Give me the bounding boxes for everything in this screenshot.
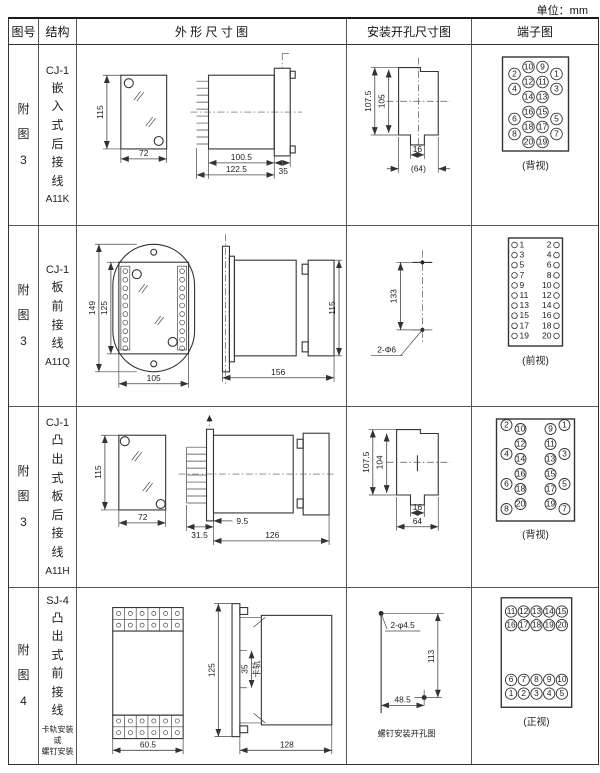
svg-text:1: 1	[562, 419, 567, 429]
svg-text:5: 5	[520, 260, 525, 270]
row4-terminal-cell: 1112131415161718192067891012345 (正视)	[472, 588, 598, 764]
row1-front-view: 115 72	[95, 75, 167, 163]
row3-fig-label: 附图3	[16, 459, 31, 535]
svg-text:5: 5	[562, 478, 567, 488]
row4-mounting-cell: 2-φ4.5 113 48.5 螺钉安装开孔图	[347, 588, 472, 764]
svg-text:5: 5	[560, 688, 565, 698]
row4-terminal-caption: (正视)	[523, 715, 549, 728]
row2-outline-cell: 149 125 105	[77, 226, 347, 407]
svg-text:7: 7	[521, 674, 526, 684]
svg-text:2: 2	[512, 68, 517, 78]
dim-v-outer: 107.5	[363, 90, 373, 111]
dim-plate-h: 149	[87, 301, 97, 315]
svg-text:14: 14	[516, 453, 526, 463]
header-terminal: 端子图	[472, 19, 598, 45]
svg-text:8: 8	[504, 503, 509, 513]
row2-model: CJ-1	[46, 264, 69, 276]
row1-model: CJ-1	[46, 65, 69, 77]
row2-outline-drawing: 149 125 105	[77, 226, 346, 406]
row4-note2: 或	[42, 736, 74, 747]
dim-rail: 35	[240, 664, 250, 674]
row4-outline-drawing: 60.5 125 35 卡轨	[77, 588, 346, 764]
dim-width: 72	[138, 512, 148, 522]
row3-terminal-cell: 2468101214161820911131517191357 (背视)	[472, 407, 598, 588]
row3-fig-cell: 附图3	[9, 407, 39, 588]
row2-terminal-drawing: 1357911131517192468101214161820 (前视)	[472, 226, 598, 406]
dim-spacing: 133	[389, 289, 399, 303]
header-mounting: 安装开孔尺寸图	[347, 19, 472, 45]
row3-code: A11H	[45, 566, 69, 577]
dim-body-h: 125	[99, 301, 109, 315]
svg-text:14: 14	[524, 91, 534, 101]
svg-text:5: 5	[554, 113, 559, 123]
row1-terminal-circles: 2468101214161820911131517191357	[509, 61, 563, 148]
svg-text:13: 13	[532, 606, 542, 616]
row2-fig-cell: 附图3	[9, 226, 39, 407]
svg-text:8: 8	[547, 270, 552, 280]
svg-text:7: 7	[554, 128, 559, 138]
svg-text:7: 7	[562, 503, 567, 513]
row4-note3: 螺钉安装	[42, 747, 74, 758]
svg-text:16: 16	[524, 106, 534, 116]
svg-text:11: 11	[546, 438, 555, 448]
hole-label: 2-φ4.5	[390, 620, 415, 630]
row1-terminal-drawing: 2468101214161820911131517191357 (背视)	[472, 45, 598, 225]
relay-dimension-sheet: 单位：mm 图号 结构 外 形 尺 寸 图 安装开孔尺寸图 端子图 附图3 CJ…	[0, 0, 600, 773]
svg-text:9: 9	[520, 280, 525, 290]
svg-text:3: 3	[534, 688, 539, 698]
svg-text:10: 10	[557, 674, 567, 684]
svg-text:6: 6	[509, 674, 514, 684]
svg-text:19: 19	[546, 498, 556, 508]
svg-text:19: 19	[545, 619, 555, 629]
dim-height: 115	[93, 465, 103, 479]
row3-outline-cell: 115 72	[77, 407, 347, 588]
svg-text:13: 13	[538, 91, 548, 101]
svg-text:12: 12	[542, 290, 552, 300]
svg-text:17: 17	[538, 121, 548, 131]
svg-text:18: 18	[532, 619, 542, 629]
svg-text:14: 14	[542, 300, 552, 310]
svg-text:15: 15	[538, 106, 548, 116]
row4-model: SJ-4	[46, 595, 69, 607]
svg-text:18: 18	[516, 483, 526, 493]
svg-text:13: 13	[546, 453, 556, 463]
row2-mounting-cell: 133 2-Φ6	[347, 226, 472, 407]
row1-outline-cell: 115 72	[77, 45, 347, 226]
row2-terminal-caption: (前视)	[522, 354, 549, 367]
row3-structure-text: 凸出式板后接线	[50, 431, 65, 561]
dim-height: 115	[95, 105, 105, 119]
row3-structure-cell: CJ-1 凸出式板后接线 A11H	[39, 407, 77, 588]
row2-mounting-drawing: 133 2-Φ6	[347, 226, 471, 406]
row4-structure-cell: SJ-4 凸出式前接线 卡轨安装 或 螺钉安装	[39, 588, 77, 764]
header-structure: 结构	[39, 19, 77, 45]
dim-height: 125	[206, 663, 216, 677]
svg-text:17: 17	[519, 619, 529, 629]
row3-terminal-drawing: 2468101214161820911131517191357 (背视)	[472, 407, 598, 587]
dim-side-h: 115	[327, 301, 337, 315]
row4-front-view: 60.5	[113, 608, 183, 755]
svg-text:7: 7	[520, 270, 525, 280]
svg-text:17: 17	[546, 483, 556, 493]
svg-text:10: 10	[542, 280, 552, 290]
row3-model: CJ-1	[46, 417, 69, 429]
row2-side-view: 156 115	[222, 234, 342, 383]
svg-text:9: 9	[548, 423, 553, 433]
svg-text:11: 11	[538, 76, 547, 86]
svg-text:9: 9	[547, 674, 552, 684]
svg-text:12: 12	[519, 606, 529, 616]
dim-width: (64)	[411, 164, 426, 174]
dim-depth: 156	[271, 367, 285, 377]
svg-text:4: 4	[547, 250, 552, 260]
row4-mounting-caption: 螺钉安装开孔图	[378, 729, 436, 739]
row1-code: A11K	[46, 194, 70, 205]
svg-text:19: 19	[520, 330, 530, 340]
row4-terminal-circles: 1112131415161718192067891012345	[505, 606, 567, 700]
dim-width: 60.5	[140, 739, 157, 749]
row1-side-view: 100.5 35 122.5	[191, 53, 303, 179]
svg-text:15: 15	[557, 606, 567, 616]
row2-structure-cell: CJ-1 板前接线 A11Q	[39, 226, 77, 407]
svg-text:11: 11	[520, 290, 529, 300]
row1-outline-drawing: 115 72	[77, 45, 346, 225]
rail-label: 卡轨	[251, 660, 261, 677]
row1-structure-text: 嵌入式后接线	[50, 79, 65, 191]
svg-text:1: 1	[509, 688, 514, 698]
row3-side-view: 31.5 9.5 126	[179, 415, 336, 545]
svg-text:10: 10	[516, 423, 526, 433]
dim-width: 64	[413, 516, 423, 526]
svg-text:14: 14	[545, 606, 555, 616]
svg-text:18: 18	[524, 121, 534, 131]
dim-slot: 16	[413, 144, 423, 154]
row4-side-view: 125 35 卡轨 128	[206, 604, 331, 755]
row3-terminal-caption: (背视)	[522, 528, 549, 541]
row1-terminal-cell: 2468101214161820911131517191357 (背视)	[472, 45, 598, 226]
row4-mount-note: 卡轨安装 或 螺钉安装	[42, 725, 74, 757]
dim-body-depth: 100.5	[231, 152, 252, 162]
row4-fig-cell: 附图4	[9, 588, 39, 764]
row1-fig-cell: 附图3	[9, 45, 39, 226]
row4-outline-cell: 60.5 125 35 卡轨	[77, 588, 347, 764]
svg-text:6: 6	[512, 113, 517, 123]
row2-structure-text: 板前接线	[50, 278, 65, 352]
row1-structure-cell: CJ-1 嵌入式后接线 A11K	[39, 45, 77, 226]
row2-front-view: 149 125 105	[87, 244, 195, 387]
row3-mounting-drawing: 107.5 104 16 64	[347, 407, 471, 587]
svg-text:4: 4	[512, 83, 517, 93]
svg-text:16: 16	[506, 619, 516, 629]
svg-text:19: 19	[538, 136, 548, 146]
svg-text:16: 16	[516, 468, 526, 478]
row2-terminal-cell: 1357911131517192468101214161820 (前视)	[472, 226, 598, 407]
dim-width: 105	[147, 373, 161, 383]
row1-fig-label: 附图3	[16, 97, 31, 173]
svg-text:16: 16	[542, 310, 552, 320]
row2-terminal-circles: 1357911131517192468101214161820	[512, 240, 560, 341]
dim-v-inner: 104	[375, 455, 385, 469]
svg-text:6: 6	[504, 478, 509, 488]
svg-text:2: 2	[521, 688, 526, 698]
hole-label: 2-Φ6	[377, 345, 396, 355]
svg-text:4: 4	[504, 448, 509, 458]
row1-mounting-drawing: 107.5 105 16 (64)	[347, 45, 471, 225]
svg-text:12: 12	[516, 438, 526, 448]
row3-front-view: 115 72	[93, 435, 166, 527]
svg-text:6: 6	[547, 260, 552, 270]
svg-text:1: 1	[520, 240, 525, 250]
row4-mounting-drawing: 2-φ4.5 113 48.5 螺钉安装开孔图	[347, 588, 471, 764]
svg-text:20: 20	[542, 330, 552, 340]
dim-v-inner: 105	[377, 94, 387, 108]
row4-note1: 卡轨安装	[42, 725, 74, 736]
row4-structure-text: 凸出式前接线	[50, 609, 65, 721]
dimension-table: 图号 结构 外 形 尺 寸 图 安装开孔尺寸图 端子图 附图3 CJ-1 嵌入式…	[8, 17, 599, 765]
row2-fig-label: 附图3	[16, 278, 31, 354]
svg-text:20: 20	[557, 619, 567, 629]
svg-text:10: 10	[524, 61, 534, 71]
svg-text:4: 4	[547, 688, 552, 698]
header-outline: 外 形 尺 寸 图	[77, 19, 347, 45]
row1-mounting-cell: 107.5 105 16 (64)	[347, 45, 472, 226]
svg-text:3: 3	[562, 448, 567, 458]
dim-slot: 16	[413, 502, 423, 512]
svg-text:20: 20	[516, 498, 526, 508]
dim-h: 48.5	[395, 694, 412, 704]
svg-text:15: 15	[546, 468, 556, 478]
svg-text:12: 12	[524, 76, 534, 86]
row4-terminal-drawing: 1112131415161718192067891012345 (正视)	[472, 588, 598, 764]
dim-plate: 9.5	[236, 516, 248, 526]
dim-total-depth: 122.5	[226, 164, 247, 174]
row1-terminal-caption: (背视)	[522, 159, 549, 172]
svg-text:17: 17	[520, 320, 530, 330]
svg-text:15: 15	[520, 310, 530, 320]
header-fig: 图号	[9, 19, 39, 45]
svg-text:3: 3	[554, 83, 559, 93]
svg-text:8: 8	[534, 674, 539, 684]
row2-code: A11Q	[45, 357, 70, 368]
dim-flange: 35	[279, 166, 289, 176]
dim-front-depth: 31.5	[191, 530, 208, 540]
svg-text:9: 9	[540, 61, 545, 71]
row3-terminal-circles: 2468101214161820911131517191357	[501, 419, 570, 514]
row4-fig-label: 附图4	[16, 638, 31, 714]
svg-text:13: 13	[520, 300, 530, 310]
dim-body-depth: 126	[265, 530, 279, 540]
svg-text:11: 11	[507, 606, 516, 616]
svg-text:3: 3	[520, 250, 525, 260]
svg-text:2: 2	[504, 419, 509, 429]
row3-outline-drawing: 115 72	[77, 407, 346, 587]
row3-mounting-cell: 107.5 104 16 64	[347, 407, 472, 588]
dim-v-outer: 107.5	[361, 451, 371, 472]
dim-depth: 128	[280, 739, 294, 749]
dim-width: 72	[139, 148, 149, 158]
svg-text:1: 1	[554, 68, 559, 78]
dim-v: 113	[426, 649, 436, 663]
unit-note: 单位：mm	[537, 2, 588, 18]
svg-text:18: 18	[542, 320, 552, 330]
svg-text:8: 8	[512, 128, 517, 138]
svg-text:20: 20	[524, 136, 534, 146]
svg-text:2: 2	[547, 240, 552, 250]
